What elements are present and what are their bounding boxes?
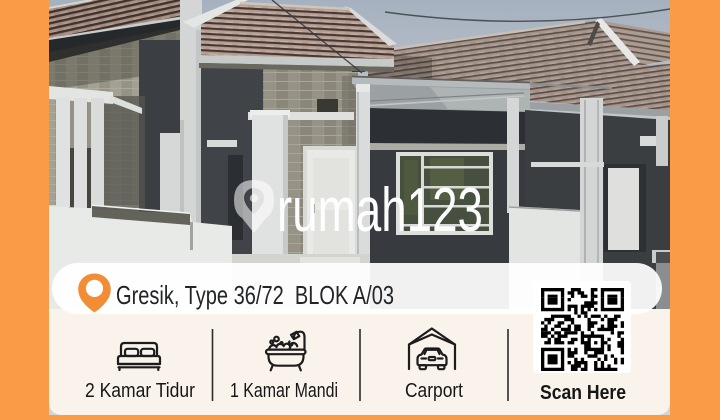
svg-text:2 Kamar Tidur: 2 Kamar Tidur [85, 379, 195, 402]
svg-text:Carport: Carport [405, 379, 463, 402]
svg-text:Gresik, Type 36/72 BLOK A/03: Gresik, Type 36/72 BLOK A/03 [116, 280, 394, 310]
svg-text:rumah123: rumah123 [277, 176, 483, 245]
svg-text:Scan Here: Scan Here [540, 381, 626, 404]
svg-text:1 Kamar Mandi: 1 Kamar Mandi [230, 379, 338, 402]
